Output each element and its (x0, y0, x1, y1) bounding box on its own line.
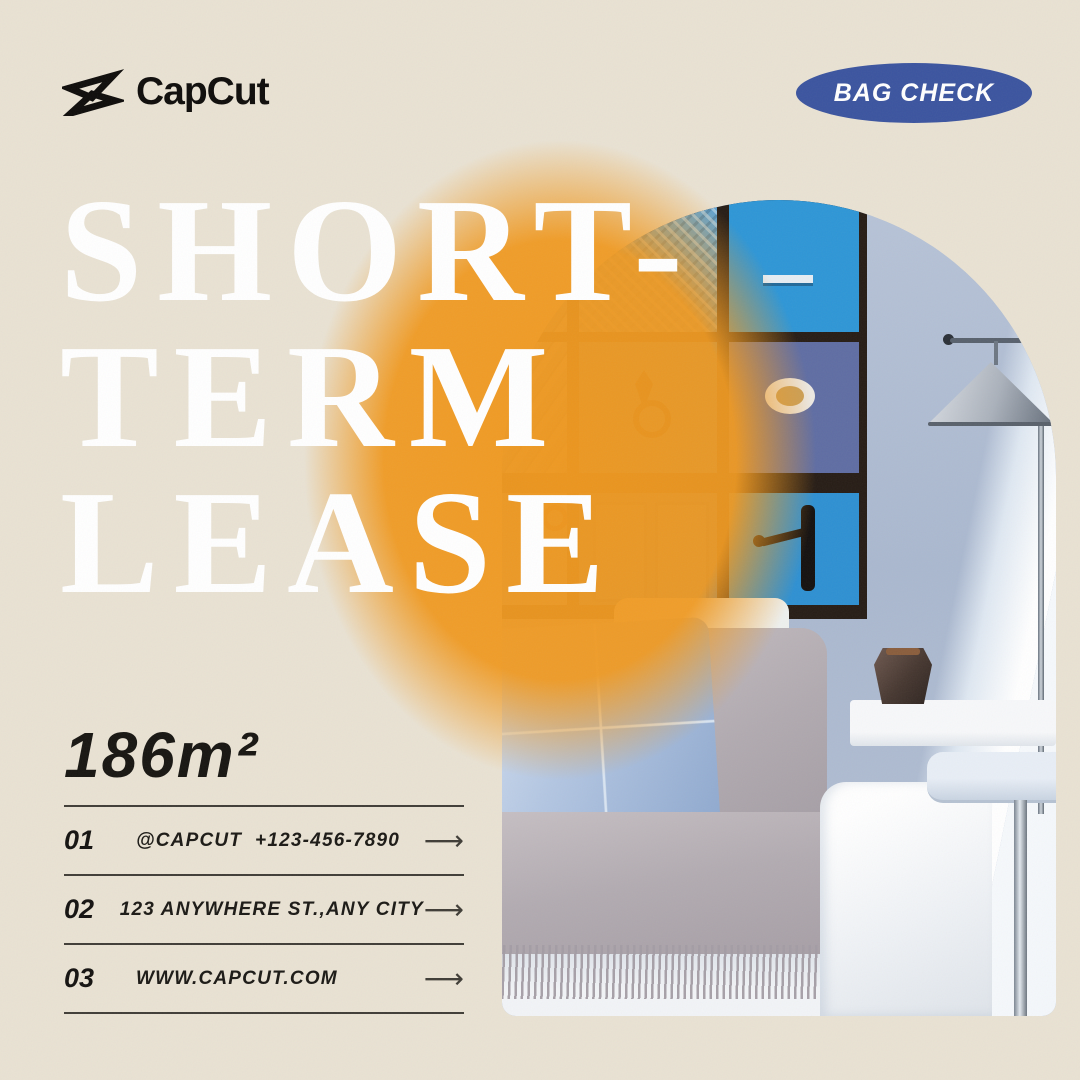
contact-row-3-text: WWW.CAPCUT.COM (136, 968, 424, 990)
arrow-right-icon[interactable]: ⟶ (424, 824, 464, 857)
door-handle-plate (801, 505, 815, 591)
c-side-table-top (927, 752, 1056, 803)
contact-row-1[interactable]: 01 @CAPCUT +123-456-7890 ⟶ (64, 805, 464, 874)
headline-line-1: SHORT- (60, 178, 697, 324)
dark-vase (874, 648, 932, 704)
contact-row-1-number: 01 (64, 825, 136, 856)
contact-row-1-text: @CAPCUT +123-456-7890 (136, 830, 424, 852)
capcut-logo[interactable]: CapCut (62, 68, 269, 116)
floor-lamp-stem (994, 341, 998, 365)
capcut-logo-text: CapCut (136, 70, 269, 114)
poster-canvas: SHORT- TERM LEASE CapCut BAG CHECK 186m²… (0, 0, 1080, 1080)
side-table (850, 700, 1056, 746)
door-handle-ball (753, 535, 765, 547)
headline: SHORT- TERM LEASE (60, 178, 697, 616)
throw-blanket (502, 812, 837, 954)
area-size-label: 186m² (64, 718, 259, 792)
sofa-armrest (820, 782, 992, 1016)
headline-line-3: LEASE (60, 470, 697, 616)
bag-check-badge[interactable]: BAG CHECK (796, 63, 1032, 123)
floor-lamp-shade-rim (928, 422, 1054, 426)
floor-lamp-arm (950, 338, 1032, 343)
arrow-right-icon[interactable]: ⟶ (424, 893, 464, 926)
blanket-fringe (502, 945, 829, 999)
contact-row-2[interactable]: 02 123 ANYWHERE ST.,ANY CITY ⟶ (64, 874, 464, 943)
door-tile-slate-emblem (729, 342, 859, 473)
contact-list: 01 @CAPCUT +123-456-7890 ⟶ 02 123 ANYWHE… (64, 805, 464, 1014)
bag-check-badge-label: BAG CHECK (834, 79, 994, 108)
arrow-right-icon[interactable]: ⟶ (424, 962, 464, 995)
door-tile-bright-blue (729, 200, 859, 332)
contact-row-3[interactable]: 03 WWW.CAPCUT.COM ⟶ (64, 943, 464, 1014)
contact-row-2-number: 02 (64, 894, 120, 925)
door-emblem-center (776, 386, 804, 406)
door-tile-handle (729, 493, 859, 605)
capcut-logo-icon (62, 68, 124, 116)
contact-row-2-text: 123 ANYWHERE ST.,ANY CITY (120, 899, 424, 921)
contact-row-3-number: 03 (64, 963, 136, 994)
headline-line-2: TERM (60, 324, 697, 470)
door-handle-shelf (763, 275, 813, 283)
door-emblem (765, 378, 815, 414)
c-side-table-leg (1014, 800, 1027, 1016)
dark-vase-rim (886, 648, 920, 655)
